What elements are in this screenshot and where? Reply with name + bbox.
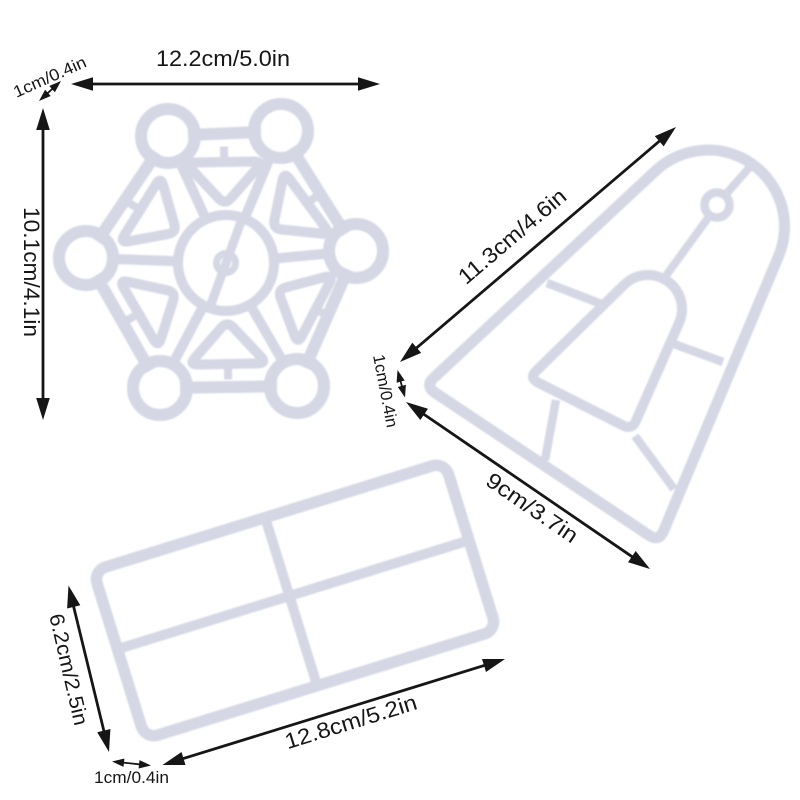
svg-text:1cm/0.4in: 1cm/0.4in [94,769,169,787]
svg-text:10.1cm/4.1in: 10.1cm/4.1in [19,207,44,337]
svg-text:12.2cm/5.0in: 12.2cm/5.0in [156,46,290,71]
svg-text:1cm/0.4in: 1cm/0.4in [11,53,90,101]
svg-text:1cm/0.4in: 1cm/0.4in [369,353,401,429]
svg-text:6.2cm/2.5in: 6.2cm/2.5in [44,611,92,727]
